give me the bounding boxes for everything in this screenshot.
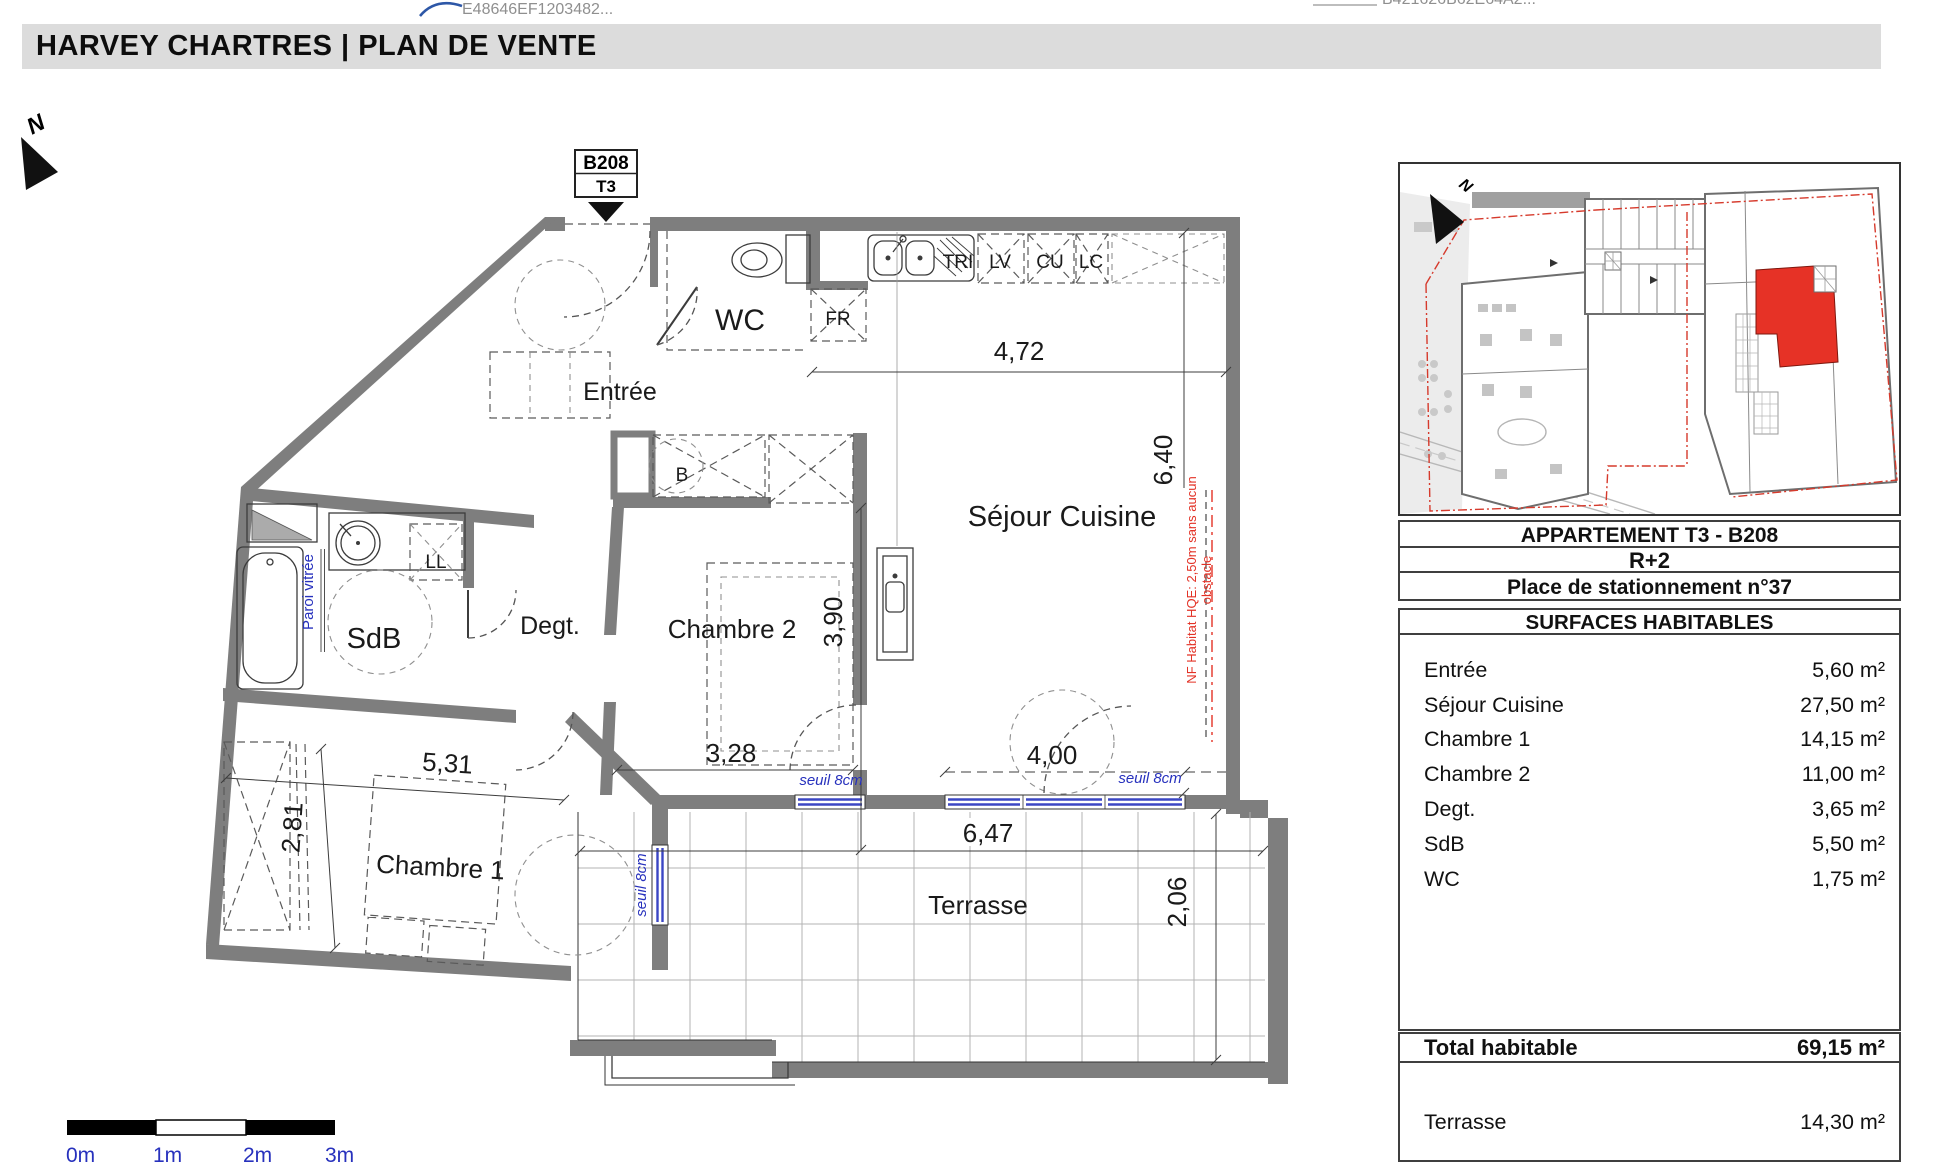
room-label-chambre1: Chambre 1	[375, 849, 505, 886]
north-label: N	[22, 108, 49, 139]
note-nf-line1: NF Habitat HQE: 2,50m sans aucun	[1184, 476, 1199, 683]
surface-row: Degt.3,65 m²	[1400, 792, 1899, 827]
surface-value: 11,00 m²	[1802, 762, 1885, 787]
surface-value: 5,50 m²	[1812, 832, 1885, 857]
scale-3m: 3m	[325, 1144, 354, 1167]
scale-1m: 1m	[153, 1144, 182, 1167]
plan-de-vente-sheet: E48646EF1203482... B421626B62E64A2... HA…	[0, 0, 1956, 1176]
dim-6-47: 6,47	[963, 818, 1014, 848]
site-plan: N	[1400, 164, 1899, 514]
entrance-door-arc	[564, 231, 650, 317]
room-label-chambre2: Chambre 2	[668, 614, 797, 644]
note-seuil-1: seuil 8cm	[799, 772, 862, 789]
total-table: Total habitable 69,15 m² Terrasse 14,30 …	[1398, 1032, 1901, 1162]
red-annotations: NF Habitat HQE: 2,50m sans aucun obstacl…	[1184, 476, 1214, 742]
surface-label: Chambre 1	[1424, 727, 1530, 752]
label-b-closet: B	[676, 465, 689, 486]
kitchen-island	[877, 548, 913, 660]
surface-row: WC1,75 m²	[1400, 862, 1899, 897]
parking-info: Place de stationnement n°37	[1398, 571, 1901, 601]
note-nf-line2: obstacle	[1199, 556, 1214, 604]
terrace-row: Terrasse 14,30 m²	[1398, 1061, 1901, 1162]
surface-row: SdB5,50 m²	[1400, 827, 1899, 862]
surface-value: 3,65 m²	[1812, 797, 1885, 822]
note-seuil-3: seuil 8cm	[633, 853, 650, 916]
label-lc: LC	[1079, 252, 1103, 273]
room-label-sejour: Séjour Cuisine	[968, 501, 1157, 533]
wc-door-leaf	[657, 287, 697, 345]
label-tri: TRI	[943, 252, 974, 273]
dim-3-90: 3,90	[818, 597, 848, 648]
surface-value: 1,75 m²	[1812, 867, 1885, 892]
surface-row: Séjour Cuisine27,50 m²	[1400, 688, 1899, 723]
surfaces-table: SURFACES HABITABLES Entrée5,60 m² Séjour…	[1398, 608, 1901, 1031]
label-cu: CU	[1036, 252, 1063, 273]
surfaces-header: SURFACES HABITABLES	[1398, 608, 1901, 635]
apartment-title: APPARTEMENT T3 - B208	[1398, 520, 1901, 548]
toilet-icon	[732, 243, 782, 277]
apartment-info-table: APPARTEMENT T3 - B208 R+2 Place de stati…	[1398, 520, 1901, 601]
scale-2m: 2m	[243, 1144, 272, 1167]
surface-label: WC	[1424, 867, 1460, 892]
dim-6-40: 6,40	[1148, 435, 1178, 486]
surface-value: 14,15 m²	[1800, 727, 1885, 752]
terrasse-step	[612, 1056, 788, 1078]
surface-row: Entrée5,60 m²	[1400, 653, 1899, 688]
unit-number: B208	[583, 153, 628, 174]
surface-label: Séjour Cuisine	[1424, 693, 1564, 718]
total-value: 69,15 m²	[1797, 1035, 1885, 1061]
apartment-floor: R+2	[1398, 546, 1901, 573]
surface-label: Chambre 2	[1424, 762, 1530, 787]
surface-label: Entrée	[1424, 658, 1487, 683]
dim-4-00: 4,00	[1027, 740, 1078, 770]
label-ll: LL	[425, 552, 446, 573]
site-plan-box: N	[1398, 162, 1901, 516]
room-label-degt: Degt.	[520, 612, 580, 640]
note-paroi-vitree: Paroi vitrée	[300, 554, 317, 630]
surface-label: SdB	[1424, 832, 1465, 857]
room-label-wc: WC	[715, 304, 765, 337]
marker-pointer-icon	[588, 202, 624, 222]
surface-value: 5,60 m²	[1812, 658, 1885, 683]
dim-2-81: 2,81	[275, 801, 308, 853]
windows	[652, 795, 1185, 925]
unit-marker: B208 T3	[575, 150, 637, 222]
scale-bar: 0m 1m 2m 3m	[66, 1120, 354, 1167]
dim-3-28: 3,28	[706, 738, 757, 768]
terrace-label: Terrasse	[1424, 1110, 1506, 1135]
room-label-sdb: SdB	[347, 623, 402, 655]
column	[614, 434, 652, 496]
unit-type: T3	[596, 177, 616, 196]
surfaces-body: Entrée5,60 m² Séjour Cuisine27,50 m² Cha…	[1398, 633, 1901, 1031]
total-label: Total habitable	[1424, 1035, 1578, 1061]
dim-2-06: 2,06	[1162, 877, 1192, 928]
surface-label: Degt.	[1424, 797, 1475, 822]
total-row: Total habitable 69,15 m²	[1398, 1032, 1901, 1063]
surface-row: Chambre 114,15 m²	[1400, 723, 1899, 758]
dim-4-72: 4,72	[994, 336, 1045, 366]
note-seuil-2: seuil 8cm	[1118, 770, 1181, 787]
surface-row: Chambre 211,00 m²	[1400, 757, 1899, 792]
label-lv: LV	[989, 252, 1011, 273]
dim-5-31: 5,31	[421, 746, 473, 779]
terrace-value: 14,30 m²	[1800, 1110, 1885, 1135]
room-label-terrasse: Terrasse	[928, 890, 1028, 920]
room-label-entree: Entrée	[583, 378, 657, 406]
scale-0m: 0m	[66, 1144, 95, 1167]
surface-value: 27,50 m²	[1800, 693, 1885, 718]
label-fr: FR	[825, 309, 850, 330]
north-arrow-icon: N	[21, 108, 58, 190]
